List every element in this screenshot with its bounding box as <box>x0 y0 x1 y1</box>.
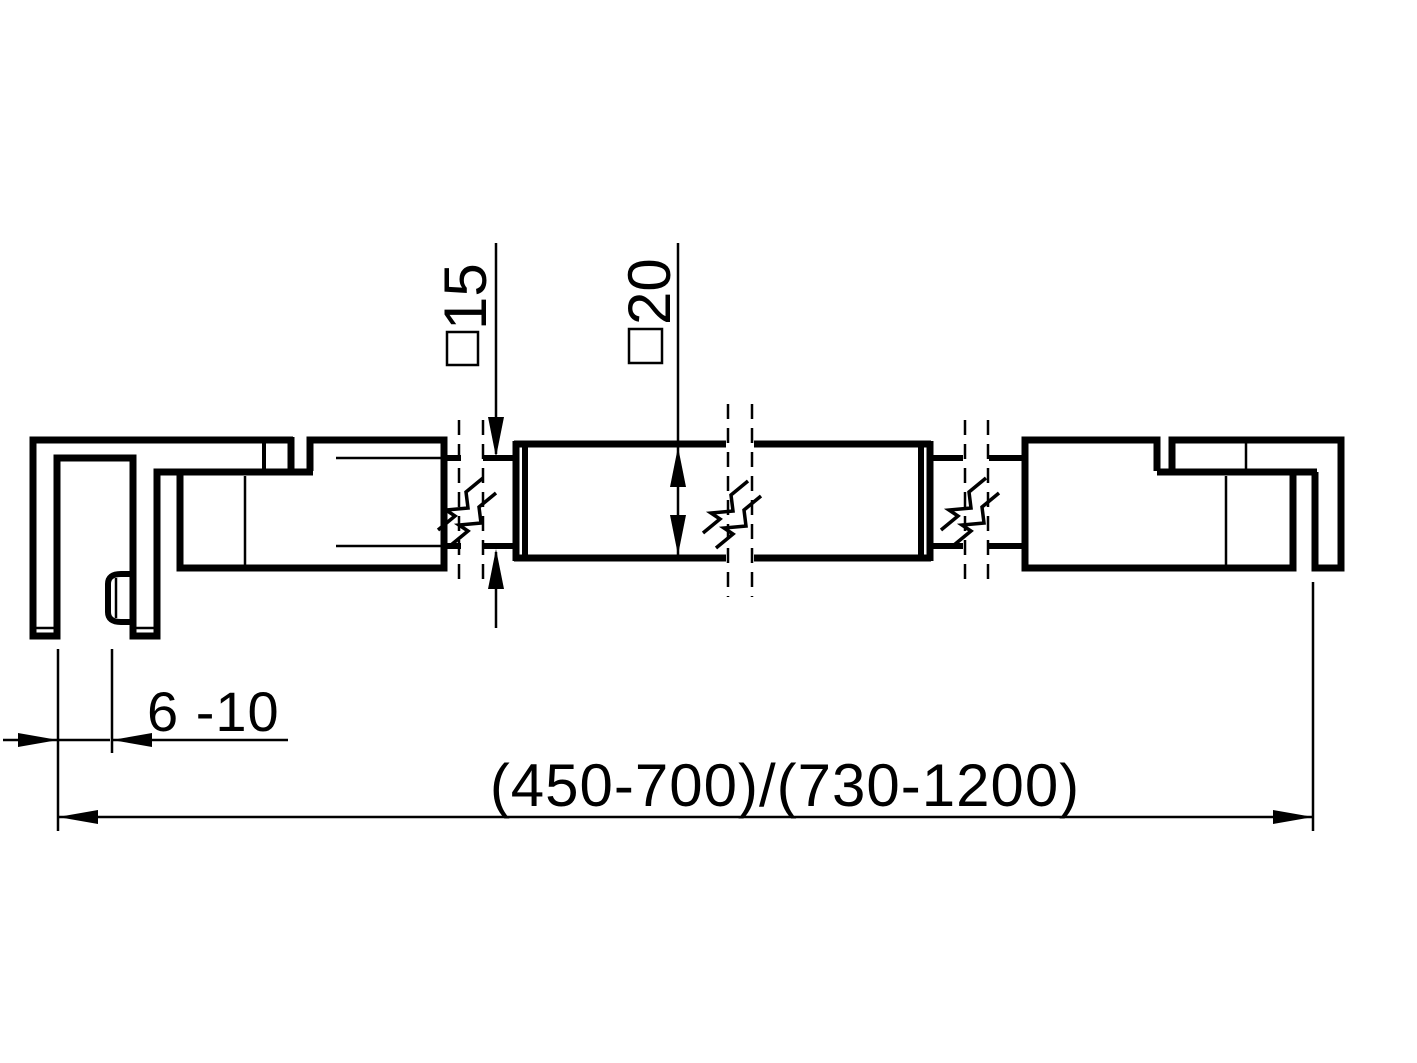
right-wall-bracket <box>1157 440 1341 568</box>
break-symbol-right <box>941 420 999 583</box>
break-symbol-middle <box>703 404 761 597</box>
right-bar-holder <box>1025 440 1293 568</box>
stabilizer-bar-drawing: 15 20 6 -10 (450-700)/(730-1200) <box>0 0 1417 1063</box>
dim-arrow-left <box>112 733 152 747</box>
break-zigzag <box>716 496 761 548</box>
dim-large-profile: 20 <box>616 243 686 555</box>
left-bar-holder <box>180 440 444 568</box>
dim-label-15: 15 <box>432 263 499 330</box>
holder-outline <box>1025 440 1293 568</box>
clamp-outline <box>33 440 313 636</box>
break-zigzag <box>954 493 999 545</box>
dim-label-overall-length: (450-700)/(730-1200) <box>490 752 1080 819</box>
dim-arrow-up <box>488 549 504 589</box>
dim-arrow-right <box>1273 810 1313 824</box>
dim-arrow-left <box>58 810 98 824</box>
left-glass-clamp <box>33 437 313 636</box>
dim-arrow-down <box>670 515 686 555</box>
dim-label-glass-thickness: 6 -10 <box>147 680 280 743</box>
clamp-screw-knob <box>108 574 133 622</box>
dim-arrow-right <box>18 733 58 747</box>
dim-arrow-down <box>488 417 504 457</box>
bar-small-right <box>931 458 1025 546</box>
technical-drawing-canvas: 15 20 6 -10 (450-700)/(730-1200) <box>0 0 1417 1063</box>
dim-arrow-up <box>670 447 686 487</box>
square-profile-icon <box>447 332 478 365</box>
bar-small-left <box>444 458 513 546</box>
dim-glass-thickness: 6 -10 <box>3 649 288 831</box>
square-profile-icon <box>629 329 662 363</box>
bracket-outline <box>1172 440 1341 568</box>
dim-label-20: 20 <box>616 258 683 325</box>
